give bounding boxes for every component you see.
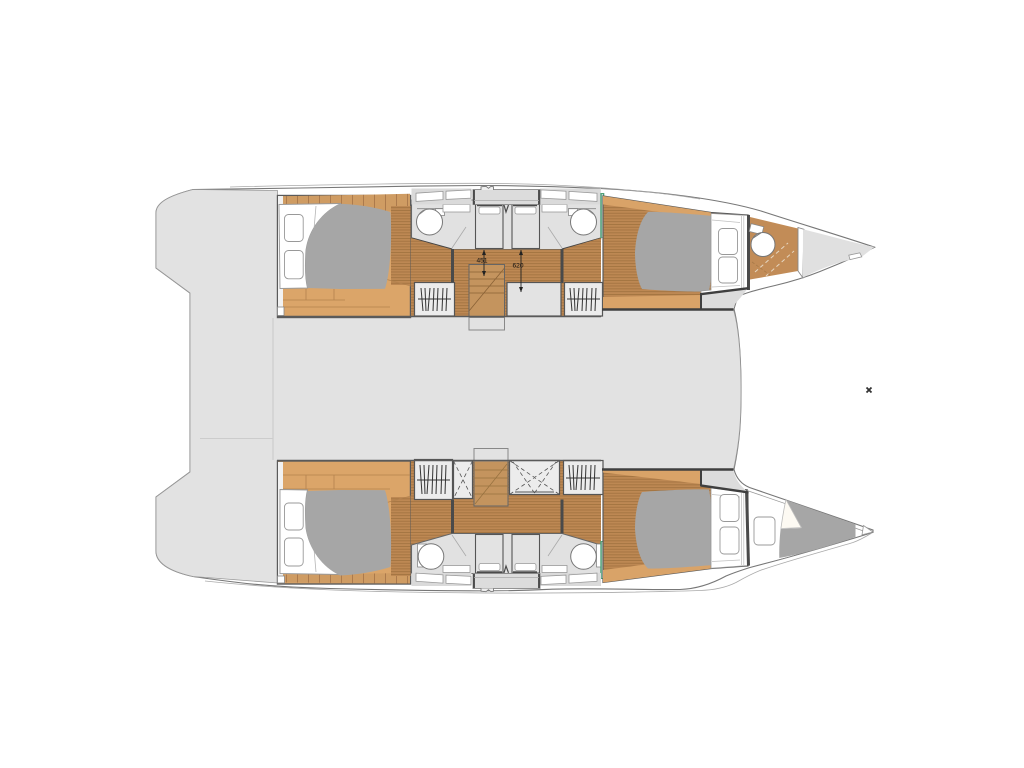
svg-text:451: 451 <box>477 258 488 265</box>
svg-text:620: 620 <box>513 263 524 270</box>
